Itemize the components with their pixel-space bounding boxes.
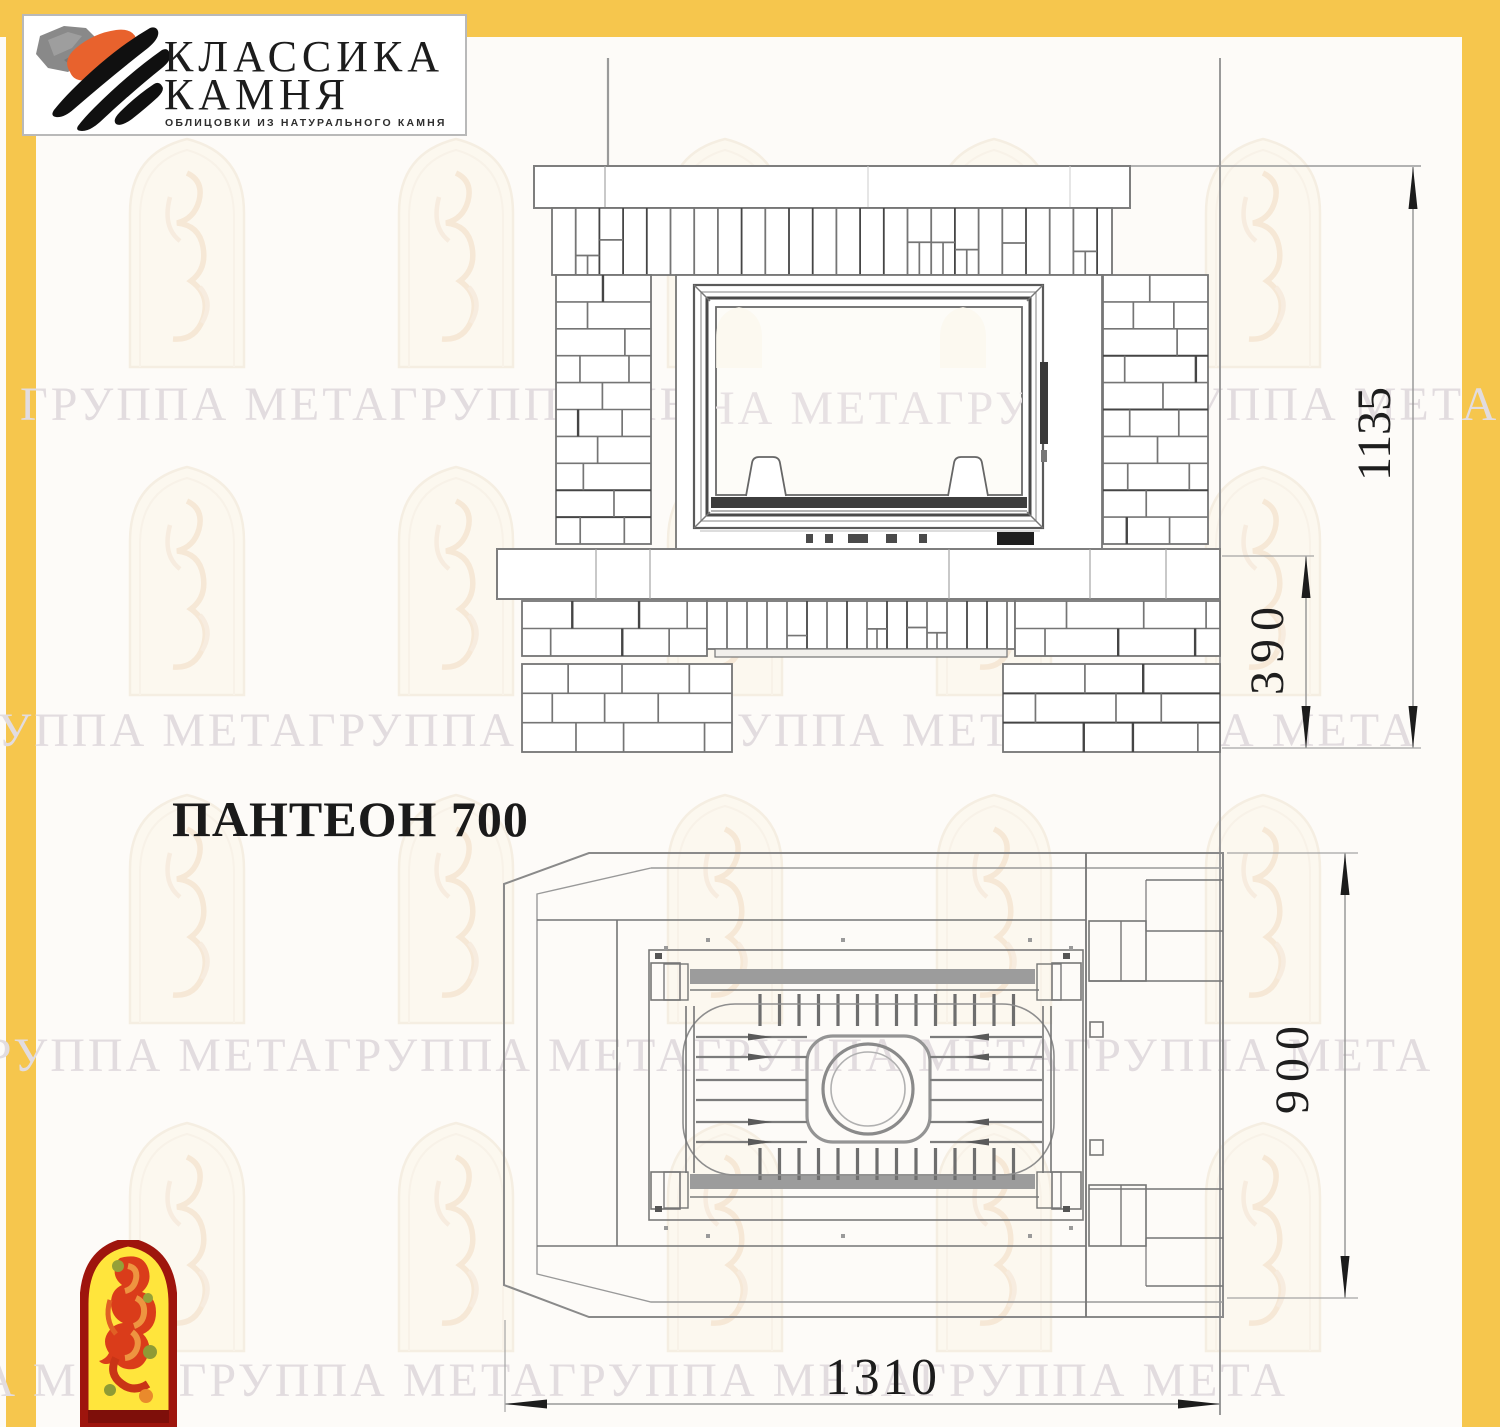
svg-text:390: 390 [1241,607,1294,695]
svg-text:ОБЛИЦОВКИ ИЗ НАТУРАЛЬНОГО КАМН: ОБЛИЦОВКИ ИЗ НАТУРАЛЬНОГО КАМНЯ [165,117,445,129]
svg-text:1310: 1310 [825,1349,937,1406]
svg-text:КАМНЯ: КАМНЯ [164,70,352,119]
svg-text:1135: 1135 [1348,387,1401,481]
svg-text:900: 900 [1266,1026,1319,1114]
